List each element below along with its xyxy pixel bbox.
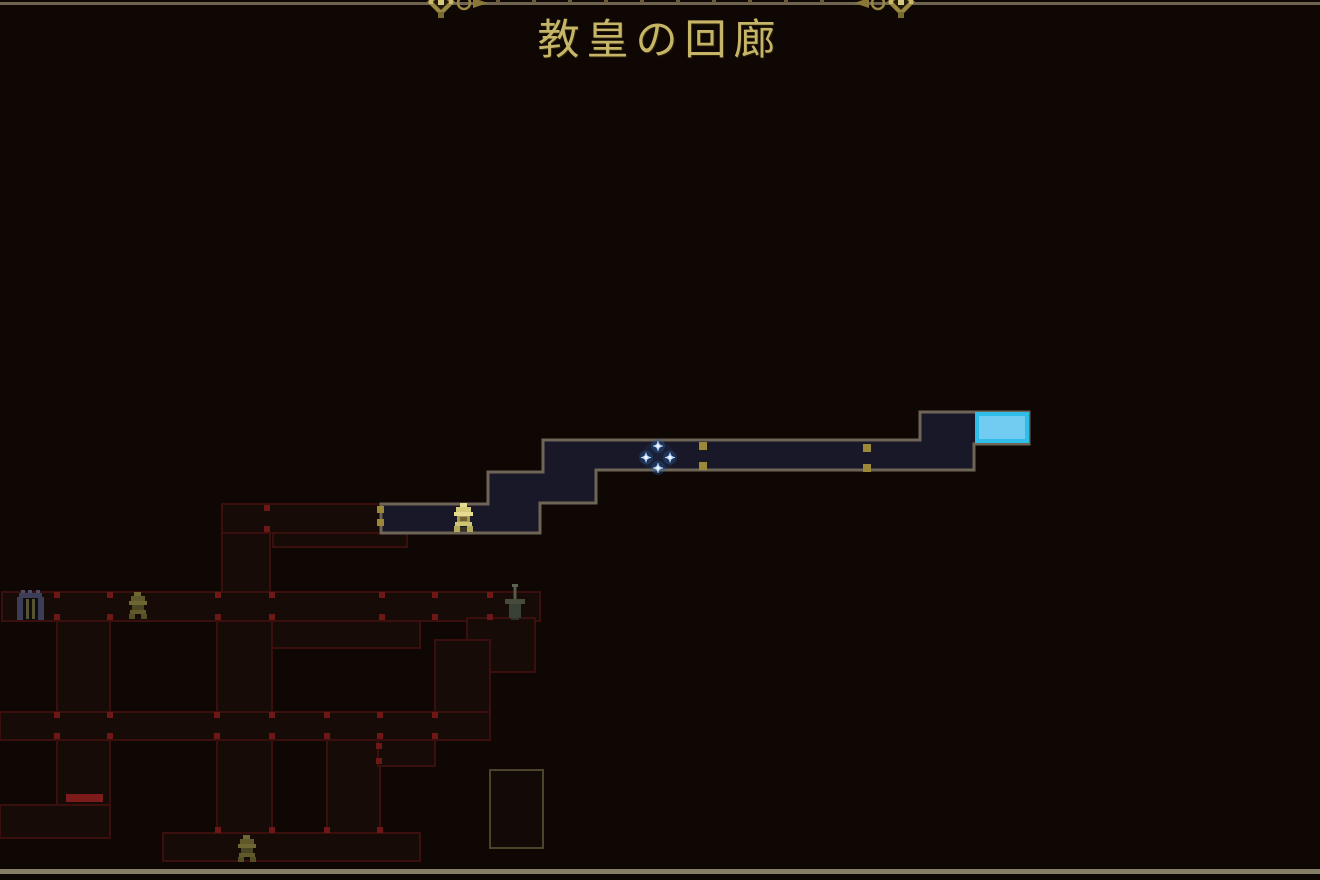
room-dim-shaft-b1 [57, 621, 110, 714]
room-dim-underband [273, 533, 407, 547]
room-dim-subrow [272, 621, 420, 648]
map-screen: 教皇の回廊 [0, 0, 1320, 880]
room-bright-staircase-corridor [381, 412, 1029, 533]
room-dim-shaft-c1 [217, 621, 272, 714]
gate-entrance-icon [17, 590, 44, 620]
room-dim-mid-sub [378, 740, 435, 766]
dim-door-markers [54, 505, 493, 833]
room-dim-shaft-d [327, 738, 380, 835]
bottom-strip [0, 874, 1320, 880]
current-room-highlight [977, 414, 1027, 441]
room-dim-shaft-a [222, 533, 270, 594]
world-map-canvas [0, 0, 1320, 880]
room-dim-mid-row [0, 712, 490, 740]
room-dim-shaft-c2 [217, 738, 272, 835]
room-dim-top-corridor [222, 504, 381, 533]
room-unexplored-outline [490, 770, 543, 848]
dim-map-region [0, 504, 540, 861]
room-dim-bottom-left [0, 805, 110, 838]
room-dim-bottom-row [163, 833, 420, 861]
sealed-door-marker [66, 794, 103, 802]
